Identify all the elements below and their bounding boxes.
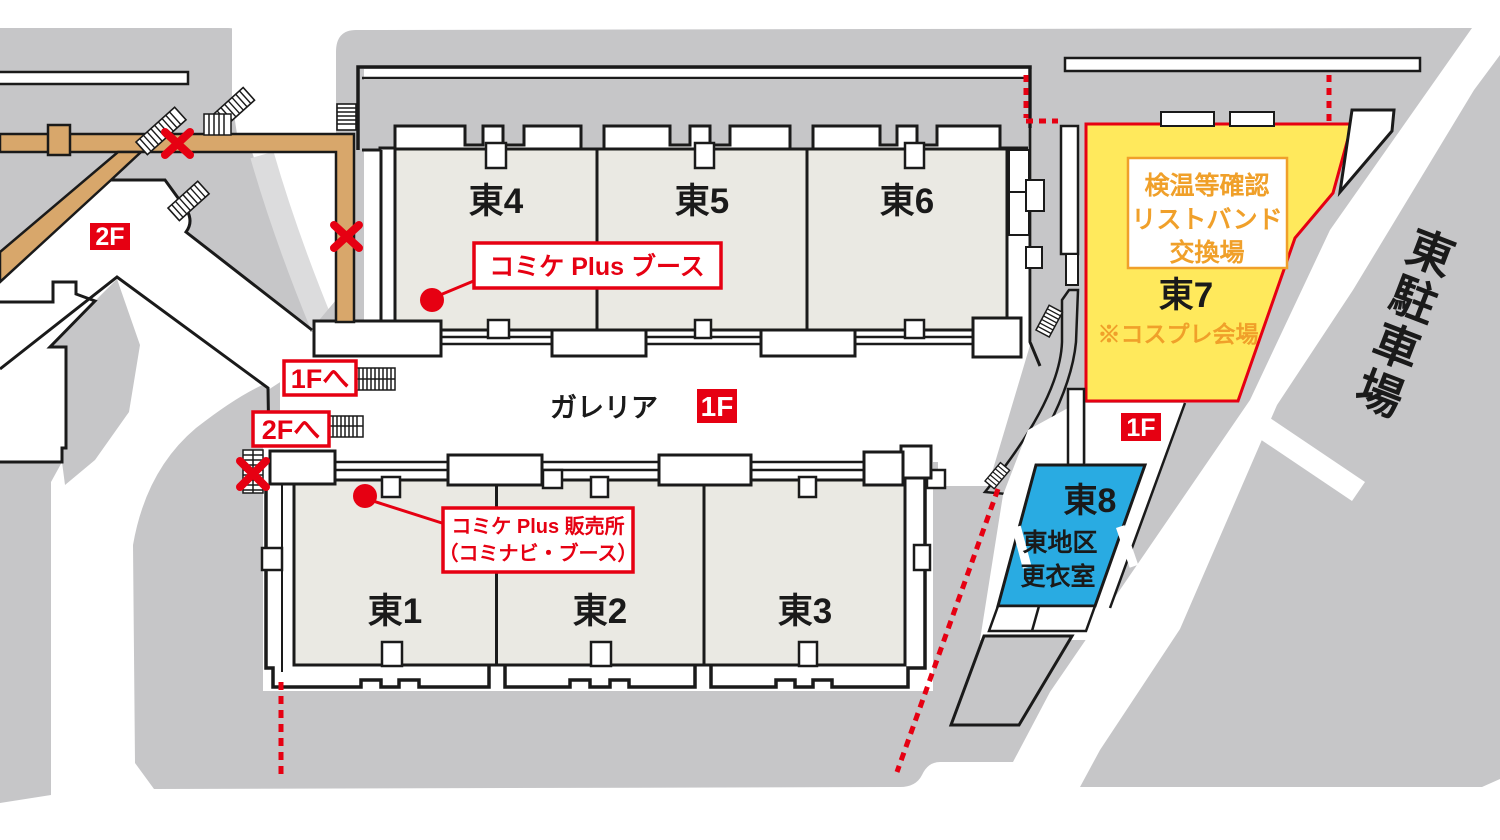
svg-text:東4: 東4 [469, 182, 524, 221]
svg-text:1Fへ: 1Fへ [291, 364, 350, 394]
svg-text:1F: 1F [1126, 414, 1155, 442]
svg-text:東3: 東3 [778, 592, 832, 631]
svg-text:検温等確認: 検温等確認 [1144, 171, 1269, 200]
svg-text:東1: 東1 [368, 592, 422, 631]
svg-text:交換場: 交換場 [1169, 238, 1244, 267]
svg-text:ガレリア: ガレリア [550, 393, 658, 423]
svg-text:コミケ Plus ブース: コミケ Plus ブース [489, 252, 704, 281]
svg-text:更衣室: 更衣室 [1020, 562, 1095, 591]
svg-text:2F: 2F [95, 223, 124, 251]
svg-text:東8: 東8 [1064, 482, 1117, 520]
svg-text:東6: 東6 [880, 182, 934, 221]
svg-text:東7: 東7 [1159, 276, 1213, 315]
svg-text:※コスプレ会場: ※コスプレ会場 [1098, 321, 1259, 347]
svg-text:コミケ Plus 販売所: コミケ Plus 販売所 [451, 515, 624, 538]
svg-text:2Fへ: 2Fへ [262, 415, 321, 445]
svg-text:東5: 東5 [675, 182, 729, 221]
svg-text:東地区: 東地区 [1022, 529, 1097, 557]
svg-text:東2: 東2 [573, 592, 627, 631]
svg-text:リストバンド: リストバンド [1131, 206, 1282, 234]
svg-text:（コミナビ・ブース）: （コミナビ・ブース） [439, 541, 638, 565]
svg-text:1F: 1F [701, 391, 734, 422]
